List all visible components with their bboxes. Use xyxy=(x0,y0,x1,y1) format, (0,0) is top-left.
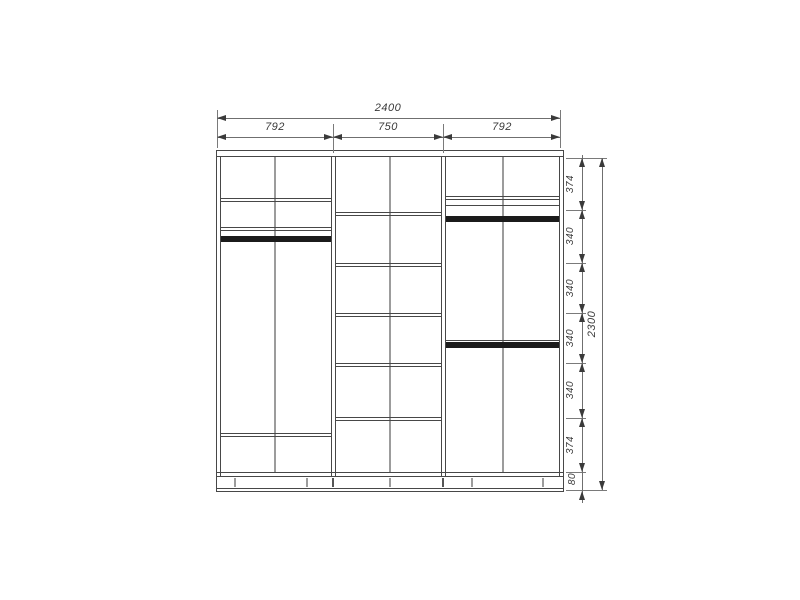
dim-arrow-icon xyxy=(579,463,585,472)
plinth-line xyxy=(216,491,563,492)
plinth-leg xyxy=(542,478,544,487)
dim-label-height-segment-3: 340 xyxy=(565,268,577,308)
shelf-line xyxy=(335,212,441,213)
dim-arrow-icon xyxy=(579,210,585,219)
partition-line xyxy=(445,156,446,476)
dim-arrow-icon xyxy=(217,134,226,140)
plinth-leg xyxy=(332,478,334,487)
dim-label-height-segment-2: 340 xyxy=(565,216,577,256)
shelf-line xyxy=(335,366,441,367)
shelf-line xyxy=(445,340,559,341)
dim-label-total-height: 2300 xyxy=(586,304,598,344)
dim-arrow-icon xyxy=(217,115,226,121)
plinth-leg xyxy=(389,478,391,487)
dimension-line xyxy=(602,158,603,490)
extension-line xyxy=(560,110,561,148)
dim-label-height-segment-1: 374 xyxy=(565,164,577,204)
dim-arrow-icon xyxy=(579,263,585,272)
plinth-leg xyxy=(442,478,444,487)
shelf-line xyxy=(220,201,331,202)
dim-arrow-icon xyxy=(579,313,585,322)
dim-arrow-icon xyxy=(579,491,585,500)
dim-arrow-icon xyxy=(324,134,333,140)
plinth-leg xyxy=(306,478,308,487)
dim-arrow-icon xyxy=(434,134,443,140)
shelf-line xyxy=(335,266,441,267)
wardrobe-elevation-drawing: 2400 792 750 792 xyxy=(0,0,800,600)
shelf-line xyxy=(220,436,331,437)
shelf-line xyxy=(220,227,331,228)
shelf-line xyxy=(335,263,441,264)
shelf-line xyxy=(335,420,441,421)
shelf-line xyxy=(335,316,441,317)
side-panel-line xyxy=(220,156,221,476)
shelf-line xyxy=(445,199,559,200)
shelf-line xyxy=(335,363,441,364)
dim-arrow-icon xyxy=(579,363,585,372)
dim-arrow-icon xyxy=(333,134,342,140)
dim-label-section-width-1: 792 xyxy=(240,121,310,133)
top-panel-line xyxy=(216,150,563,151)
divider-line xyxy=(389,157,391,472)
dim-arrow-icon xyxy=(579,254,585,263)
dim-arrow-icon xyxy=(599,481,605,490)
hanging-rod xyxy=(221,236,331,242)
dim-arrow-icon xyxy=(579,354,585,363)
dim-label-height-segment-7: 80 xyxy=(567,459,579,499)
dim-label-height-segment-4: 340 xyxy=(565,318,577,358)
side-panel-line xyxy=(563,150,564,492)
dim-arrow-icon xyxy=(579,304,585,313)
hanging-rod xyxy=(446,216,559,222)
dim-label-total-width: 2400 xyxy=(353,102,423,114)
shelf-line xyxy=(220,230,331,231)
side-panel-line xyxy=(559,156,560,476)
plinth-leg xyxy=(234,478,236,487)
dim-label-height-segment-5: 340 xyxy=(565,370,577,410)
divider-line xyxy=(274,157,276,472)
dim-arrow-icon xyxy=(551,134,560,140)
dim-arrow-icon xyxy=(551,115,560,121)
dim-arrow-icon xyxy=(443,134,452,140)
partition-line xyxy=(441,156,442,476)
shelf-line xyxy=(220,433,331,434)
plinth-line xyxy=(216,488,563,489)
dim-arrow-icon xyxy=(579,409,585,418)
dimension-line xyxy=(217,137,560,138)
shelf-line xyxy=(335,313,441,314)
dim-arrow-icon xyxy=(579,201,585,210)
side-panel-line xyxy=(216,150,217,492)
dim-arrow-icon xyxy=(579,158,585,167)
dim-label-section-width-2: 750 xyxy=(353,121,423,133)
plinth-leg xyxy=(471,478,473,487)
hanging-rod xyxy=(446,342,559,348)
bottom-panel-line xyxy=(216,476,563,477)
shelf-line xyxy=(335,215,441,216)
dim-arrow-icon xyxy=(579,418,585,427)
shelf-line xyxy=(445,196,559,197)
dim-label-section-width-3: 792 xyxy=(467,121,537,133)
shelf-line xyxy=(220,198,331,199)
bottom-panel-line xyxy=(216,472,563,473)
dimension-line xyxy=(217,118,560,119)
partition-line xyxy=(331,156,332,476)
shelf-line xyxy=(335,417,441,418)
shelf-line xyxy=(445,205,559,206)
dim-arrow-icon xyxy=(599,158,605,167)
